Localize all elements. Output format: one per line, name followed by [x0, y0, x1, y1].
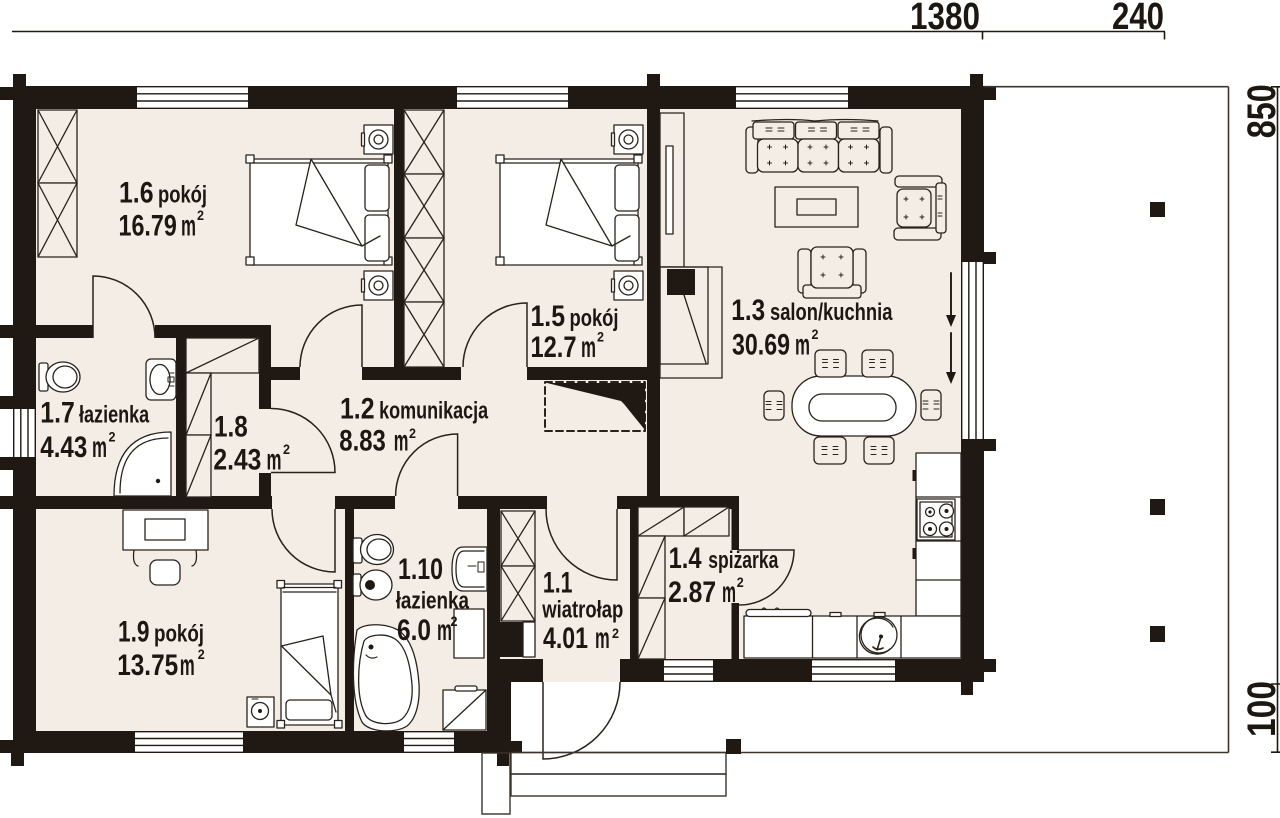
svg-text:6.0: 6.0: [397, 614, 431, 647]
svg-text:13.75: 13.75: [117, 649, 178, 682]
svg-text:m: m: [722, 576, 736, 609]
svg-text:1.2: 1.2: [340, 393, 375, 426]
svg-text:1.6: 1.6: [119, 176, 154, 209]
svg-text:m: m: [180, 649, 195, 682]
svg-text:2: 2: [737, 574, 744, 590]
svg-text:łazienka: łazienka: [396, 588, 470, 615]
svg-text:2: 2: [812, 326, 819, 342]
svg-text:100: 100: [1240, 681, 1280, 737]
svg-text:1.5: 1.5: [531, 300, 566, 333]
svg-text:2: 2: [612, 625, 619, 641]
svg-text:2: 2: [283, 441, 290, 457]
svg-text:m: m: [267, 444, 282, 477]
svg-text:1380: 1380: [910, 0, 980, 38]
svg-text:m: m: [595, 622, 610, 655]
svg-text:8.83: 8.83: [339, 424, 386, 457]
svg-text:wiatrołap: wiatrołap: [542, 597, 624, 624]
svg-text:4.43: 4.43: [40, 431, 87, 464]
svg-text:2: 2: [409, 425, 416, 441]
svg-text:salon/kuchnia: salon/kuchnia: [770, 299, 893, 326]
svg-text:4.01: 4.01: [543, 622, 588, 655]
svg-text:2: 2: [451, 613, 458, 629]
svg-text:1.4: 1.4: [669, 542, 702, 575]
svg-text:m: m: [92, 431, 107, 464]
svg-text:komunikacja: komunikacja: [379, 398, 488, 425]
svg-text:m: m: [581, 331, 596, 364]
svg-text:pokój: pokój: [154, 621, 204, 648]
svg-text:2: 2: [109, 429, 116, 445]
svg-text:spiżarka: spiżarka: [708, 547, 778, 574]
svg-text:12.7: 12.7: [531, 331, 577, 364]
svg-text:1.7: 1.7: [40, 397, 75, 430]
svg-text:2: 2: [597, 329, 604, 345]
svg-text:1.3: 1.3: [731, 294, 765, 327]
svg-text:m: m: [181, 209, 196, 242]
svg-text:1.1: 1.1: [543, 566, 573, 599]
svg-text:2: 2: [198, 646, 205, 662]
svg-text:pokój: pokój: [158, 181, 207, 208]
svg-text:pokój: pokój: [570, 305, 619, 332]
svg-text:30.69: 30.69: [732, 329, 790, 362]
svg-text:1.9: 1.9: [118, 616, 150, 649]
svg-text:1.10: 1.10: [398, 553, 443, 586]
svg-text:m: m: [795, 329, 810, 362]
svg-text:850: 850: [1240, 84, 1280, 138]
svg-text:2.87: 2.87: [668, 576, 716, 609]
svg-text:łazienka: łazienka: [79, 402, 150, 429]
svg-text:1.8: 1.8: [214, 411, 248, 444]
svg-text:2: 2: [197, 207, 204, 223]
svg-text:16.79: 16.79: [119, 209, 177, 242]
svg-text:240: 240: [1112, 0, 1164, 38]
svg-text:m: m: [394, 424, 409, 457]
svg-text:2.43: 2.43: [213, 444, 261, 477]
